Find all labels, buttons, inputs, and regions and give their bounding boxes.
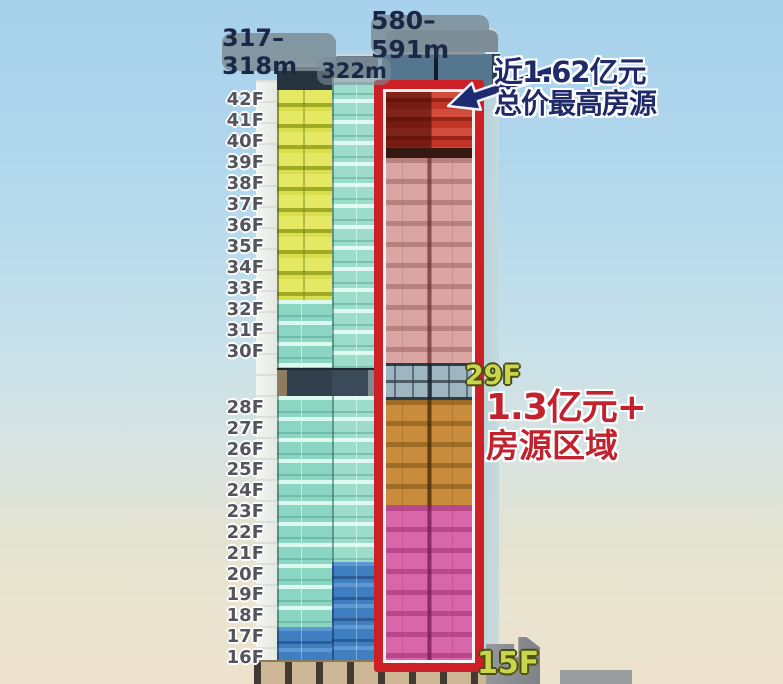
height-pill-middle-tower: 322m [317,57,391,85]
background-building-low [560,670,632,684]
floor-label: 34F [227,258,264,278]
floor-label: 35F [227,237,264,257]
top-price-line2: 总价最高房源 [494,88,714,119]
left-tower-teal-section-upper [277,300,332,368]
price-zone-line1: 1.3亿元+ [486,388,706,428]
floor-label: 28F [227,398,264,418]
building-price-diagram: 42F 41F 40F 39F 38F 37F 36F 35F 34F 33F … [0,0,783,684]
top-price-line1: 近1.62亿元 [494,56,714,88]
floor-label: 26F [227,440,264,460]
floor-label: 22F [227,523,264,543]
left-tower-yellow-section [277,90,334,300]
floor-label: 27F [227,419,264,439]
floor-15-tag: 15F [477,646,539,681]
middle-tower-teal-section-upper [332,78,378,368]
floor-label: 37F [227,195,264,215]
floor-axis-upper: 42F 41F 40F 39F 38F 37F 36F 35F 34F 33F … [214,90,264,362]
floor-label: 32F [227,300,264,320]
floor-label: 17F [227,627,264,647]
price-zone-line2: 房源区域 [486,428,706,464]
floor-label: 40F [227,132,264,152]
floor-label: 19F [227,585,264,605]
top-price-callout: 近1.62亿元 总价最高房源 [494,56,714,120]
floor-label: 21F [227,544,264,564]
height-pill-right-tower: 580–591m [371,15,489,55]
floor-label: 42F [227,90,264,110]
floor-axis-lower: 28F 27F 26F 25F 24F 23F 22F 21F 20F 19F … [214,398,264,668]
middle-tower-teal-section-lower [332,396,378,562]
middle-tower-blue-section [332,562,378,664]
floor-label: 20F [227,565,264,585]
floor-label: 30F [227,342,264,362]
floor-label: 23F [227,502,264,522]
floor-label: 36F [227,216,264,236]
floor-label: 18F [227,606,264,626]
floor-label: 38F [227,174,264,194]
floor-label: 25F [227,460,264,480]
price-zone-callout: 1.3亿元+ 房源区域 [486,388,706,464]
floor-label: 24F [227,481,264,501]
floor-label: 33F [227,279,264,299]
floor-label: 31F [227,321,264,341]
left-tower-teal-section-lower [277,396,332,627]
left-tower-blue-section [277,627,332,664]
floor-label: 41F [227,111,264,131]
floor-label: 16F [227,648,264,668]
floor-label: 39F [227,153,264,173]
